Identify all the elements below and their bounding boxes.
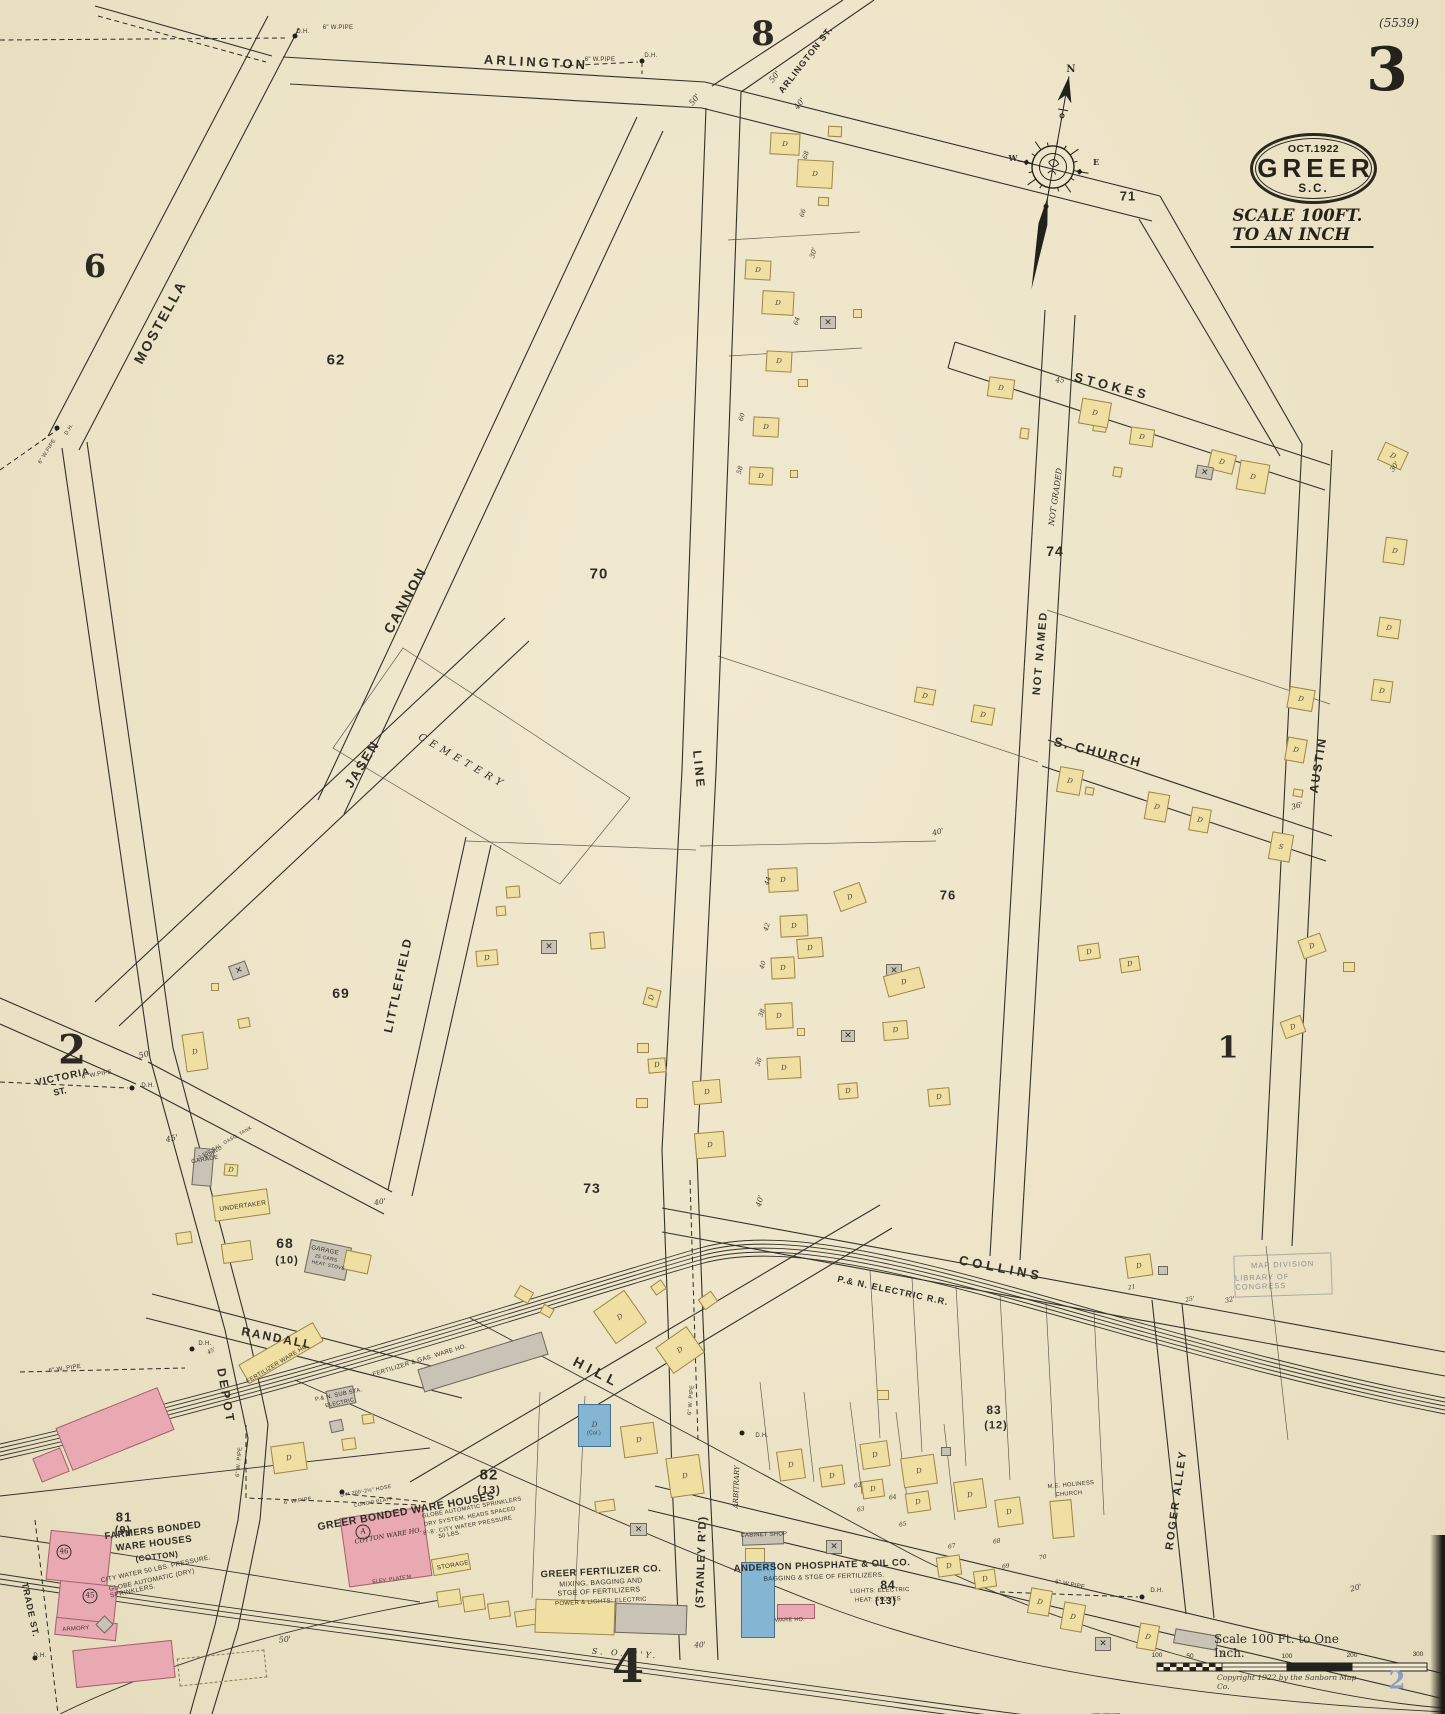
street-label: P.& N. ELECTRIC R.R. bbox=[837, 1275, 950, 1307]
page-edge-shadow bbox=[1430, 1535, 1445, 1714]
pipe-label: D.H. bbox=[296, 29, 309, 35]
circled-number: A bbox=[356, 1525, 371, 1540]
dimension-label: 63 bbox=[857, 1506, 866, 1513]
dimension-label: 40 bbox=[759, 960, 768, 970]
street-label: COLLINS bbox=[958, 1254, 1044, 1283]
dimension-label: 40' bbox=[793, 97, 807, 112]
dimension-label: 69 bbox=[1002, 1563, 1011, 1570]
pipe-label: 6" W.PIPE bbox=[585, 57, 616, 63]
note-label: POWER & LIGHTS: ELECTRIC bbox=[555, 1597, 647, 1608]
pipe-label: D.H. bbox=[64, 423, 75, 436]
dimension-label: 67 bbox=[948, 1543, 957, 1550]
pipe-label: 6" W. PIPE bbox=[48, 1364, 81, 1374]
street-label: HILL bbox=[571, 1354, 623, 1390]
pipe-label: D.H. bbox=[644, 53, 657, 59]
dimension-label: 20' bbox=[1349, 1583, 1362, 1593]
pipe-label: D.H. bbox=[1150, 1588, 1163, 1594]
note-label: CONC'D PLATF. bbox=[354, 1497, 395, 1509]
street-label: ARBITRARY bbox=[733, 1465, 741, 1508]
pipe-label: 6" W.PIPE bbox=[1054, 1579, 1085, 1591]
stamp-line-1: MAP DIVISION bbox=[1251, 1259, 1314, 1270]
street-label: ROGER ALLEY bbox=[1165, 1449, 1190, 1551]
dimension-label: 64 bbox=[793, 316, 801, 326]
street-label: S. CHURCH bbox=[1053, 735, 1144, 769]
street-label: (STANLEY R'D) bbox=[695, 1516, 709, 1609]
block-number: 69 bbox=[332, 986, 350, 1000]
note-label: (Col.) bbox=[587, 1432, 601, 1437]
dimension-label: 40' bbox=[755, 1194, 765, 1207]
block-number: 76 bbox=[940, 889, 956, 902]
street-label: MOSTELLA bbox=[131, 278, 188, 366]
dimension-label: 45' bbox=[207, 1347, 217, 1356]
street-label: TRADE ST. bbox=[20, 1582, 40, 1638]
dimension-label: 21 bbox=[1128, 1284, 1137, 1291]
circled-number: 46 bbox=[57, 1545, 72, 1560]
block-number: 73 bbox=[583, 1181, 601, 1195]
block-number: (12) bbox=[984, 1421, 1008, 1432]
pipe-label: 6" W.PIPE bbox=[323, 25, 354, 31]
note-label: M.E. HOLINESS bbox=[1047, 1481, 1094, 1491]
dimension-label: 40' bbox=[931, 827, 944, 837]
pipe-label: D.H. bbox=[755, 1433, 768, 1439]
street-label: LITTLEFIELD bbox=[382, 936, 414, 1034]
note-label: ARMORY bbox=[62, 1626, 89, 1634]
note-label: BAGGING & STGE OF FERTILIZERS. bbox=[764, 1573, 885, 1584]
adjacent-sheet-6: 6 bbox=[84, 247, 106, 285]
dimension-label: 50' bbox=[768, 70, 782, 85]
dimension-label: 50' bbox=[278, 1635, 291, 1644]
pipe-label: 6" W. PIPE bbox=[236, 1447, 244, 1477]
note-label: UNDERTAKER bbox=[219, 1200, 267, 1213]
block-number: 81 bbox=[116, 1511, 132, 1524]
dimension-label: 64 bbox=[889, 1494, 898, 1501]
dimension-label: 25' bbox=[1185, 1296, 1195, 1304]
title-state: S.C. bbox=[1298, 183, 1328, 195]
copyright-note: Copyright 1922 by the Sanborn Map Co. bbox=[1217, 1673, 1369, 1691]
dimension-label: 38 bbox=[758, 1008, 767, 1018]
block-number: 62 bbox=[327, 353, 346, 368]
block-number: (10) bbox=[275, 1256, 299, 1267]
sanborn-map-sheet: DDDD✕DDDDDDD✕DDDDDDDDDDSDDDD✕DDDDDDDDDDD… bbox=[0, 0, 1445, 1714]
scale-heading: SCALE 100FT. TO AN INCH bbox=[1231, 206, 1374, 248]
street-label: NOT GRADED bbox=[1048, 468, 1064, 527]
dimension-label: 60 bbox=[738, 412, 746, 422]
adjacent-sheet-4: 4 bbox=[612, 1639, 644, 1693]
street-label: DEPOT bbox=[215, 1367, 237, 1425]
dimension-label: 44 bbox=[764, 876, 773, 886]
note-label: WARE HO. bbox=[775, 1618, 805, 1625]
dimension-label: 30' bbox=[1389, 461, 1401, 474]
dimension-label: 70 bbox=[1039, 1554, 1048, 1561]
pipe-label: 6" W.PIPE bbox=[38, 439, 58, 466]
block-number: 70 bbox=[590, 567, 609, 582]
dimension-label: 58 bbox=[736, 465, 744, 475]
circled-number: 45 bbox=[83, 1589, 98, 1604]
dimension-label: 62 bbox=[854, 1482, 863, 1489]
note-label: ELEV. PLATF'M bbox=[372, 1575, 412, 1585]
scale-bar-label: Scale 100 Ft. to One Inch. bbox=[1214, 1632, 1368, 1660]
block-number: 82 bbox=[480, 1468, 499, 1483]
street-label: NOT NAMED bbox=[1032, 610, 1050, 695]
dimension-label: 40' bbox=[694, 1641, 706, 1649]
pipe-label: D.H. bbox=[141, 1083, 154, 1089]
library-stamp: MAP DIVISION LIBRARY OF CONGRESS bbox=[1233, 1252, 1332, 1297]
block-number: 68 bbox=[276, 1236, 294, 1250]
dimension-label: 45 bbox=[1056, 378, 1065, 385]
pipe-label: 6" W.PIPE bbox=[284, 1497, 313, 1506]
compass-letter: W bbox=[1009, 154, 1018, 162]
note-label: LIGHTS: ELECTRIC bbox=[850, 1587, 910, 1595]
street-label: CEMETERY bbox=[416, 733, 508, 792]
compass-letter: N bbox=[1066, 65, 1075, 75]
dimension-label: 68 bbox=[993, 1538, 1002, 1545]
compass-letter: E bbox=[1093, 158, 1099, 166]
pipe-label: D.H. bbox=[198, 1341, 211, 1347]
dimension-label: 40' bbox=[374, 1197, 387, 1206]
street-label: JASEN bbox=[342, 738, 381, 790]
street-label: ST. bbox=[53, 1086, 68, 1098]
scale-tick: 300 bbox=[1413, 1652, 1424, 1659]
street-label: CANNON bbox=[381, 564, 429, 635]
business-label: GREER FERTILIZER CO. bbox=[540, 1564, 661, 1580]
pipe-label: D.H. bbox=[33, 1653, 46, 1659]
folio-corner-number: 2 bbox=[1389, 1666, 1406, 1695]
note-label: CHURCH bbox=[1055, 1491, 1082, 1499]
scale-tick: 50 bbox=[1186, 1654, 1193, 1661]
dimension-label: 36 bbox=[755, 1057, 764, 1067]
index-number: (5539) bbox=[1379, 16, 1419, 30]
block-number: 71 bbox=[1120, 190, 1136, 203]
adjacent-sheet-8: 8 bbox=[751, 14, 775, 54]
block-number: 74 bbox=[1046, 544, 1064, 558]
street-label: AUSTIN bbox=[1308, 736, 1329, 794]
note-label: FERTILIZER WARE HO. bbox=[246, 1343, 311, 1385]
adjacent-sheet-2: 2 bbox=[58, 1027, 86, 1074]
dimension-label: 68 bbox=[802, 150, 810, 160]
dimension-label: 66 bbox=[799, 208, 807, 218]
note-label: STORAGE bbox=[437, 1560, 470, 1572]
dimension-label: 42 bbox=[763, 922, 772, 932]
title-oval: Oct.1922 GREER S.C. bbox=[1250, 133, 1377, 204]
note-label: 50 LBS. bbox=[438, 1531, 461, 1541]
dimension-label: 50' bbox=[688, 93, 702, 108]
street-label: ARLINGTON ST. bbox=[777, 25, 834, 95]
block-number: 83 bbox=[986, 1404, 1001, 1416]
street-label: ARLINGTON bbox=[484, 53, 589, 71]
street-label: LINE bbox=[691, 750, 707, 790]
scale-tick: 100 bbox=[1152, 1653, 1163, 1660]
pipe-label: 6" W. PIPE bbox=[688, 1385, 696, 1415]
dimension-label: 50' bbox=[138, 1050, 152, 1061]
note-label: FERTILIZER & GAS. WARE HO. bbox=[372, 1344, 468, 1379]
dimension-label: 45' bbox=[165, 1134, 179, 1144]
note-label: HEAT: STOVE bbox=[311, 1261, 345, 1273]
street-label: STOKES bbox=[1073, 370, 1151, 401]
note-label: CABINET SHOP bbox=[741, 1532, 788, 1539]
sheet-number: 3 bbox=[1366, 35, 1408, 105]
adjacent-sheet-1: 1 bbox=[1218, 1031, 1239, 1066]
labels-layer: ARLINGTONARLINGTON ST.MOSTELLACANNONJASE… bbox=[0, 0, 1445, 1714]
title-city: GREER bbox=[1257, 153, 1374, 184]
stamp-line-2: LIBRARY OF CONGRESS bbox=[1235, 1270, 1332, 1291]
dimension-label: 36' bbox=[1290, 801, 1303, 811]
dimension-label: 65 bbox=[899, 1521, 908, 1528]
dimension-label: 30' bbox=[809, 247, 819, 259]
